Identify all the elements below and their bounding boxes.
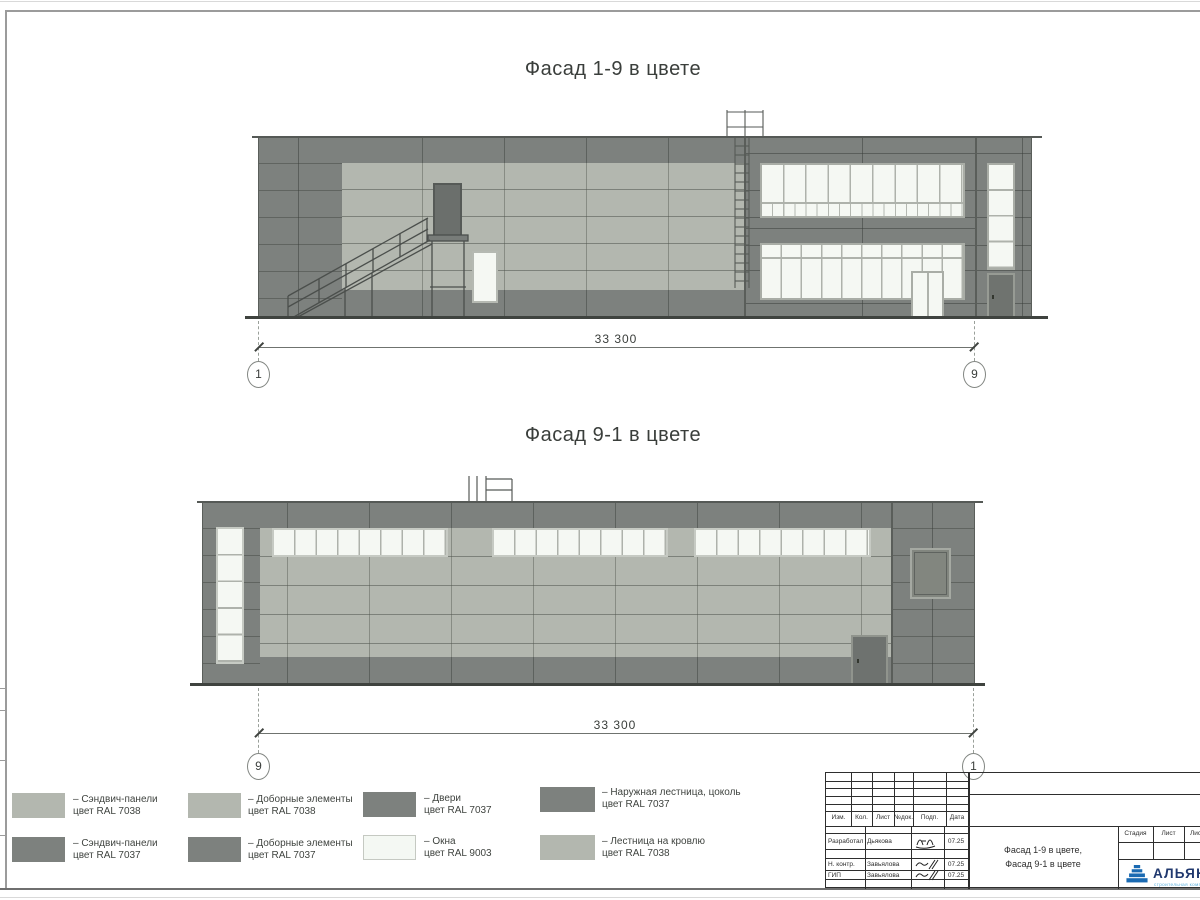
legend-swatch bbox=[12, 793, 65, 818]
tb-col-izm: Изм. bbox=[826, 814, 851, 821]
tb-col-ndok: №док. bbox=[894, 814, 913, 821]
tb-line bbox=[826, 811, 968, 812]
extension-line bbox=[974, 321, 975, 361]
tb-col-kol: Кол. bbox=[851, 814, 872, 821]
legend-label-line: – Окна bbox=[424, 836, 492, 848]
f2-ribbon-window-1 bbox=[272, 528, 448, 557]
f2-dark-door bbox=[851, 635, 888, 685]
f2-ground-line bbox=[190, 683, 985, 686]
f1-right-edge bbox=[1031, 138, 1032, 318]
tb-role: ГИП bbox=[828, 872, 841, 879]
tb-date: 07.25 bbox=[944, 861, 968, 868]
legend-label-line: цвет RAL 7037 bbox=[602, 799, 741, 811]
f1-dimension-value: 33 300 bbox=[516, 332, 716, 346]
tb-line bbox=[968, 794, 1200, 795]
tb-line bbox=[826, 833, 968, 834]
signature bbox=[914, 859, 942, 870]
tb-name: Завьялова bbox=[867, 861, 899, 868]
f1-dark-door bbox=[987, 273, 1015, 318]
sheet-frame-top bbox=[5, 10, 1200, 12]
f1-axis9-wall-line bbox=[975, 138, 977, 318]
sheet-frame-bottom bbox=[0, 888, 1200, 890]
tb-col-data: Дата bbox=[946, 814, 968, 821]
title-block: Изм. Кол. Лист №док. Подп. Дата Разработ… bbox=[825, 772, 1200, 888]
f2-dimension-line bbox=[259, 733, 973, 734]
legend-label: – Доборные элементы цвет RAL 7038 bbox=[248, 794, 353, 817]
alliance-logo-text: АЛЬЯНС bbox=[1153, 866, 1200, 881]
window-panes bbox=[696, 530, 869, 555]
legend-label-line: – Двери bbox=[424, 793, 492, 805]
f1-glass-entrance-door bbox=[911, 271, 944, 318]
legend-swatch bbox=[540, 787, 595, 812]
drawing-sheet: { "sheet": { "titles": { "facade1": "Фас… bbox=[0, 0, 1200, 900]
window-panes bbox=[494, 530, 666, 555]
extension-line bbox=[973, 688, 974, 753]
tb-line bbox=[826, 788, 968, 789]
window-inner-frame bbox=[914, 552, 947, 595]
tb-line bbox=[826, 781, 968, 782]
legend-label: – Двери цвет RAL 7037 bbox=[424, 793, 492, 816]
tb-name: Дьякова bbox=[867, 838, 892, 845]
f2-plinth-band bbox=[260, 657, 892, 685]
tb-line bbox=[826, 870, 968, 871]
tb-col-list: Лист bbox=[872, 814, 894, 821]
f1-ground-line bbox=[245, 316, 1048, 319]
legend-label: – Окна цвет RAL 9003 bbox=[424, 836, 492, 859]
f2-roof-ladder bbox=[463, 471, 515, 505]
f1-white-door bbox=[472, 251, 498, 303]
legend-label-line: – Сэндвич-панели bbox=[73, 838, 158, 850]
tb-sheets-label: Листов bbox=[1184, 830, 1200, 837]
tb-role: Разработал bbox=[828, 838, 863, 845]
panel-joint bbox=[1022, 138, 1023, 318]
legend-label-line: – Сэндвич-панели bbox=[73, 794, 158, 806]
legend-swatch bbox=[363, 792, 416, 817]
f1-left-edge bbox=[258, 138, 259, 318]
window-panes bbox=[274, 530, 446, 555]
tb-stage-label: Стадия bbox=[1118, 830, 1153, 837]
panel-joint bbox=[745, 153, 1032, 154]
legend-label-line: цвет RAL 7038 bbox=[73, 806, 158, 818]
tb-name: Завьялова bbox=[867, 872, 899, 879]
f2-dimension-value: 33 300 bbox=[515, 718, 715, 732]
margin-tick bbox=[0, 710, 5, 711]
f1-corner-strip-window bbox=[987, 163, 1015, 270]
f1-grid-bubble-right: 9 bbox=[963, 361, 986, 388]
f2-section-divider bbox=[891, 503, 893, 685]
window-panes bbox=[762, 204, 963, 216]
margin-tick bbox=[0, 760, 5, 761]
legend-label-line: цвет RAL 7037 bbox=[248, 850, 353, 862]
legend-label-line: цвет RAL 9003 bbox=[424, 848, 492, 860]
tb-line bbox=[826, 826, 968, 827]
legend-swatch bbox=[12, 837, 65, 862]
extension-line bbox=[258, 688, 259, 753]
margin-tick bbox=[0, 835, 5, 836]
f2-framed-window bbox=[910, 548, 951, 599]
legend-swatch bbox=[540, 835, 595, 860]
facade-2-title: Фасад 9-1 в цвете bbox=[413, 424, 813, 447]
tb-drawing-name-line: Фасад 1-9 в цвете, bbox=[968, 843, 1118, 857]
f2-ribbon-window-3 bbox=[694, 528, 871, 557]
legend-label-line: цвет RAL 7038 bbox=[248, 806, 353, 818]
tb-line bbox=[1118, 859, 1200, 860]
f1-grid-bubble-left: 1 bbox=[247, 361, 270, 388]
tb-line bbox=[1118, 842, 1200, 843]
legend-label-line: – Лестница на кровлю bbox=[602, 836, 705, 848]
door-handle bbox=[857, 659, 859, 663]
legend-label-line: – Доборные элементы bbox=[248, 838, 353, 850]
f1-dimension-line bbox=[259, 347, 974, 348]
alliance-logo-icon bbox=[1126, 865, 1148, 884]
tb-line bbox=[826, 849, 968, 850]
legend-label: – Сэндвич-панели цвет RAL 7038 bbox=[73, 794, 158, 817]
f2-top-band bbox=[260, 503, 892, 528]
facade-1-title: Фасад 1-9 в цвете bbox=[413, 58, 813, 81]
tb-line bbox=[968, 773, 970, 889]
legend-label: – Сэндвич-панели цвет RAL 7037 bbox=[73, 838, 158, 861]
margin-tick bbox=[0, 688, 5, 689]
legend-label-line: – Доборные элементы bbox=[248, 794, 353, 806]
tb-line bbox=[826, 796, 968, 797]
door-handle bbox=[992, 295, 994, 299]
legend-label-line: цвет RAL 7038 bbox=[602, 848, 705, 860]
legend-label-line: цвет RAL 7037 bbox=[424, 805, 492, 817]
alliance-logo-tagline: строительная компания bbox=[1154, 882, 1200, 887]
tb-date: 07.25 bbox=[944, 872, 968, 879]
sheet-outer-edge-top bbox=[0, 1, 1200, 2]
tb-line bbox=[826, 879, 968, 880]
window-panes bbox=[762, 245, 963, 257]
f1-external-staircase bbox=[280, 175, 475, 322]
legend-label: – Доборные элементы цвет RAL 7037 bbox=[248, 838, 353, 861]
tb-sheet-label: Лист bbox=[1153, 830, 1184, 837]
window-panes bbox=[762, 165, 963, 202]
legend-label: – Наружная лестница, цоколь цвет RAL 703… bbox=[602, 787, 741, 810]
sheet-outer-edge-bottom bbox=[0, 897, 1200, 898]
legend-swatch bbox=[188, 837, 241, 862]
legend-swatch bbox=[363, 835, 416, 860]
f2-grid-bubble-left: 9 bbox=[247, 753, 270, 780]
signature bbox=[914, 870, 942, 881]
extension-line bbox=[258, 321, 259, 361]
f1-roof-ladder bbox=[723, 106, 771, 292]
tb-date: 07.25 bbox=[944, 838, 968, 845]
tb-line bbox=[826, 804, 968, 805]
panel-joint bbox=[745, 228, 975, 229]
f2-right-edge bbox=[974, 503, 975, 685]
door-mullion bbox=[927, 273, 929, 316]
signature bbox=[913, 834, 942, 849]
sheet-frame-left bbox=[5, 10, 7, 888]
legend-label: – Лестница на кровлю цвет RAL 7038 bbox=[602, 836, 705, 859]
tb-col-podp: Подп. bbox=[913, 814, 946, 821]
tb-role: Н. контр. bbox=[828, 861, 855, 868]
f1-top-band bbox=[342, 138, 745, 163]
legend-swatch bbox=[188, 793, 241, 818]
tb-line bbox=[968, 826, 1200, 827]
f2-left-edge bbox=[202, 503, 203, 685]
legend-label-line: цвет RAL 7037 bbox=[73, 850, 158, 862]
tb-drawing-name-line: Фасад 9-1 в цвете bbox=[968, 857, 1118, 871]
f2-corner-strip-window bbox=[216, 527, 244, 664]
tb-line bbox=[826, 858, 968, 859]
tb-drawing-name: Фасад 1-9 в цвете, Фасад 9-1 в цвете bbox=[968, 843, 1118, 871]
f1-upper-window-band bbox=[760, 163, 965, 218]
f2-ribbon-window-2 bbox=[492, 528, 668, 557]
legend-label-line: – Наружная лестница, цоколь bbox=[602, 787, 741, 799]
